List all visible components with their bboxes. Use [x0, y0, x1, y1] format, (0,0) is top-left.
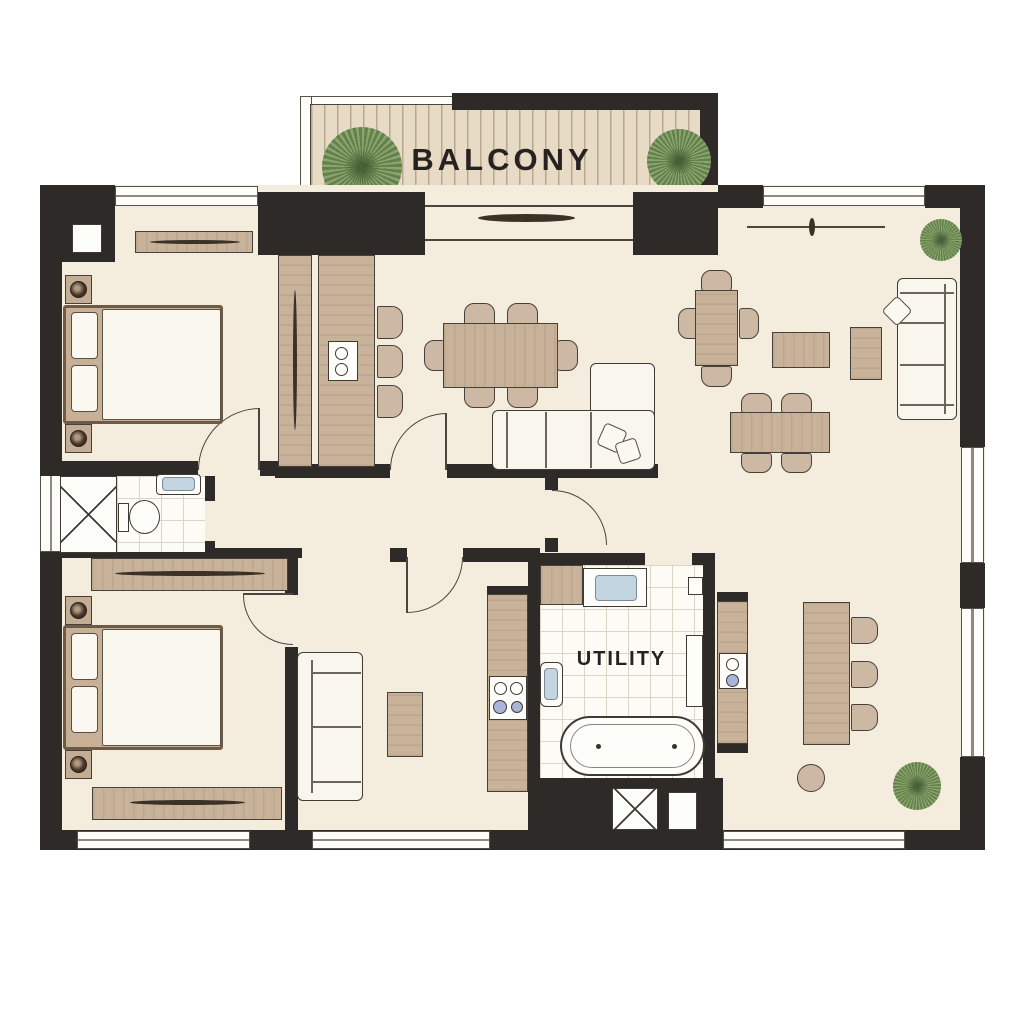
living-plant-bottom-right [893, 762, 941, 810]
wall-right-upper [960, 185, 985, 447]
bedroom1-dresser-indicator [150, 240, 240, 244]
balcony-wall-top [452, 93, 716, 110]
kr-stool-3 [851, 704, 878, 731]
service-shaft [612, 788, 658, 830]
toilet-bowl [129, 500, 160, 534]
floor-plan: BALCONY [0, 0, 1024, 1024]
bedroom2-duvet [102, 629, 221, 746]
bathtub-drain-right [672, 744, 677, 749]
window-bedroom1-top [115, 186, 258, 206]
kl-burner-3 [493, 700, 507, 714]
bedroom1-pillow-a [71, 312, 98, 359]
door-leaf-lounge [406, 557, 408, 613]
lounge-sofa-cushion [313, 726, 361, 728]
bedroom2-pillow-a [71, 633, 98, 680]
living-sofa [897, 278, 957, 420]
wall-top-mid-left [258, 192, 425, 255]
balcony-sliding-door-panel [478, 214, 575, 222]
window-living-top [763, 186, 925, 206]
kr-burner-1 [726, 658, 739, 671]
duct-box [668, 792, 697, 830]
utility-label: UTILITY [540, 646, 703, 672]
living-sofa-armrest-top [900, 292, 954, 294]
sectional-divider-c [590, 412, 592, 468]
utility-vanity-basin [595, 575, 637, 601]
dining-table [443, 323, 558, 388]
living-side-table [850, 327, 882, 380]
wall-right-mid [960, 563, 985, 608]
bathtub-drain-left [596, 744, 601, 749]
window-right-upper [961, 447, 984, 563]
utility-left-sink-basin [544, 668, 558, 700]
shower [60, 476, 117, 553]
dining-chair-left [424, 340, 445, 371]
living-curtain-track [747, 226, 885, 228]
wall-hall-south-stub [390, 548, 407, 562]
kitchen-right-island [803, 602, 850, 745]
column-top-left [72, 224, 102, 253]
toilet-tank [118, 503, 129, 532]
kitchen-left-cooktop [489, 676, 527, 720]
lounge-sofa-armrest-bottom [313, 781, 361, 783]
bedroom2-lamp-bottom [70, 756, 87, 773]
desk-chair-right [739, 308, 759, 339]
kl-burner-1 [494, 682, 507, 695]
table2-chair-top-1 [741, 393, 772, 413]
island-hob-burner-b [335, 363, 348, 376]
dining-chair-bottom-2 [507, 385, 538, 408]
kl-burner-4 [511, 701, 523, 713]
island-stool-3 [377, 385, 403, 418]
kr-stool-1 [851, 617, 878, 644]
window-lounge-bottom [312, 831, 490, 849]
utility-shelf [688, 577, 703, 595]
island-stool-1 [377, 306, 403, 339]
dining-chair-bottom-1 [464, 385, 495, 408]
sectional-divider-a [506, 412, 508, 468]
window-left-bathroom [40, 473, 62, 552]
utility-counter-corner [540, 565, 583, 605]
kl-burner-2 [510, 682, 523, 695]
pouf [797, 764, 825, 792]
living-sofa-back [944, 284, 946, 414]
bedroom2-pillow-b [71, 686, 98, 733]
window-right-lower [961, 608, 984, 757]
window-living-bottom [723, 831, 905, 849]
desk-chair-top [701, 270, 732, 291]
lounge-sofa-armrest-top [313, 672, 361, 674]
balcony-door-track-top [425, 205, 633, 207]
lounge-coffee-table [387, 692, 423, 757]
kitchen-left-cap-top [487, 586, 528, 594]
living-sofa-cushion-a [900, 322, 944, 324]
island-hob-burner-a [335, 347, 348, 360]
bedroom1-lamp-top [70, 281, 87, 298]
door-leaf-bedroom1 [258, 408, 260, 470]
living-track-indicator [809, 218, 815, 236]
balcony-plant-right [647, 129, 711, 193]
kr-stool-2 [851, 661, 878, 688]
wall-utility-north-a [528, 553, 645, 565]
bedroom1-wardrobe-indicator [293, 290, 297, 430]
sectional-divider-b [545, 412, 547, 468]
door-leaf-dining [445, 413, 447, 470]
table2-chair-top-2 [781, 393, 812, 413]
door-leaf-bedroom2 [243, 593, 293, 595]
bedroom2-dresser-indicator [130, 800, 245, 805]
bedroom1-pillow-b [71, 365, 98, 412]
table2-chair-bottom-2 [781, 453, 812, 473]
bedroom2-wardrobe-indicator [115, 571, 265, 576]
dining-chair-right [557, 340, 578, 371]
table2-chair-bottom-1 [741, 453, 772, 473]
balcony-label: BALCONY [382, 138, 622, 182]
wall-utility-west [528, 553, 540, 790]
wall-top-mid-right [633, 192, 718, 255]
bedroom1-lamp-bottom [70, 430, 87, 447]
living-plant-top-right [920, 219, 962, 261]
window-bedroom2-bottom [77, 831, 250, 849]
wall-top-right-a [718, 185, 763, 208]
living-coffee-table [772, 332, 830, 368]
wall-entry-stub-top [545, 478, 558, 490]
kr-burner-2 [726, 674, 739, 687]
wall-utility-east [703, 553, 715, 790]
bathroom-sink-basin [162, 477, 195, 491]
kitchen-right-cap-bottom [717, 744, 748, 753]
living-sofa-armrest-bottom [900, 404, 954, 406]
balcony-door-track-bottom [425, 239, 633, 241]
kitchen-right-cap-top [717, 592, 748, 601]
bedroom1-duvet [102, 309, 221, 420]
living-table2 [730, 412, 830, 453]
bedroom2-lamp-top [70, 602, 87, 619]
living-desk-table [695, 290, 738, 366]
desk-chair-bottom [701, 366, 732, 387]
living-sofa-cushion-b [900, 364, 944, 366]
island-stool-2 [377, 345, 403, 378]
